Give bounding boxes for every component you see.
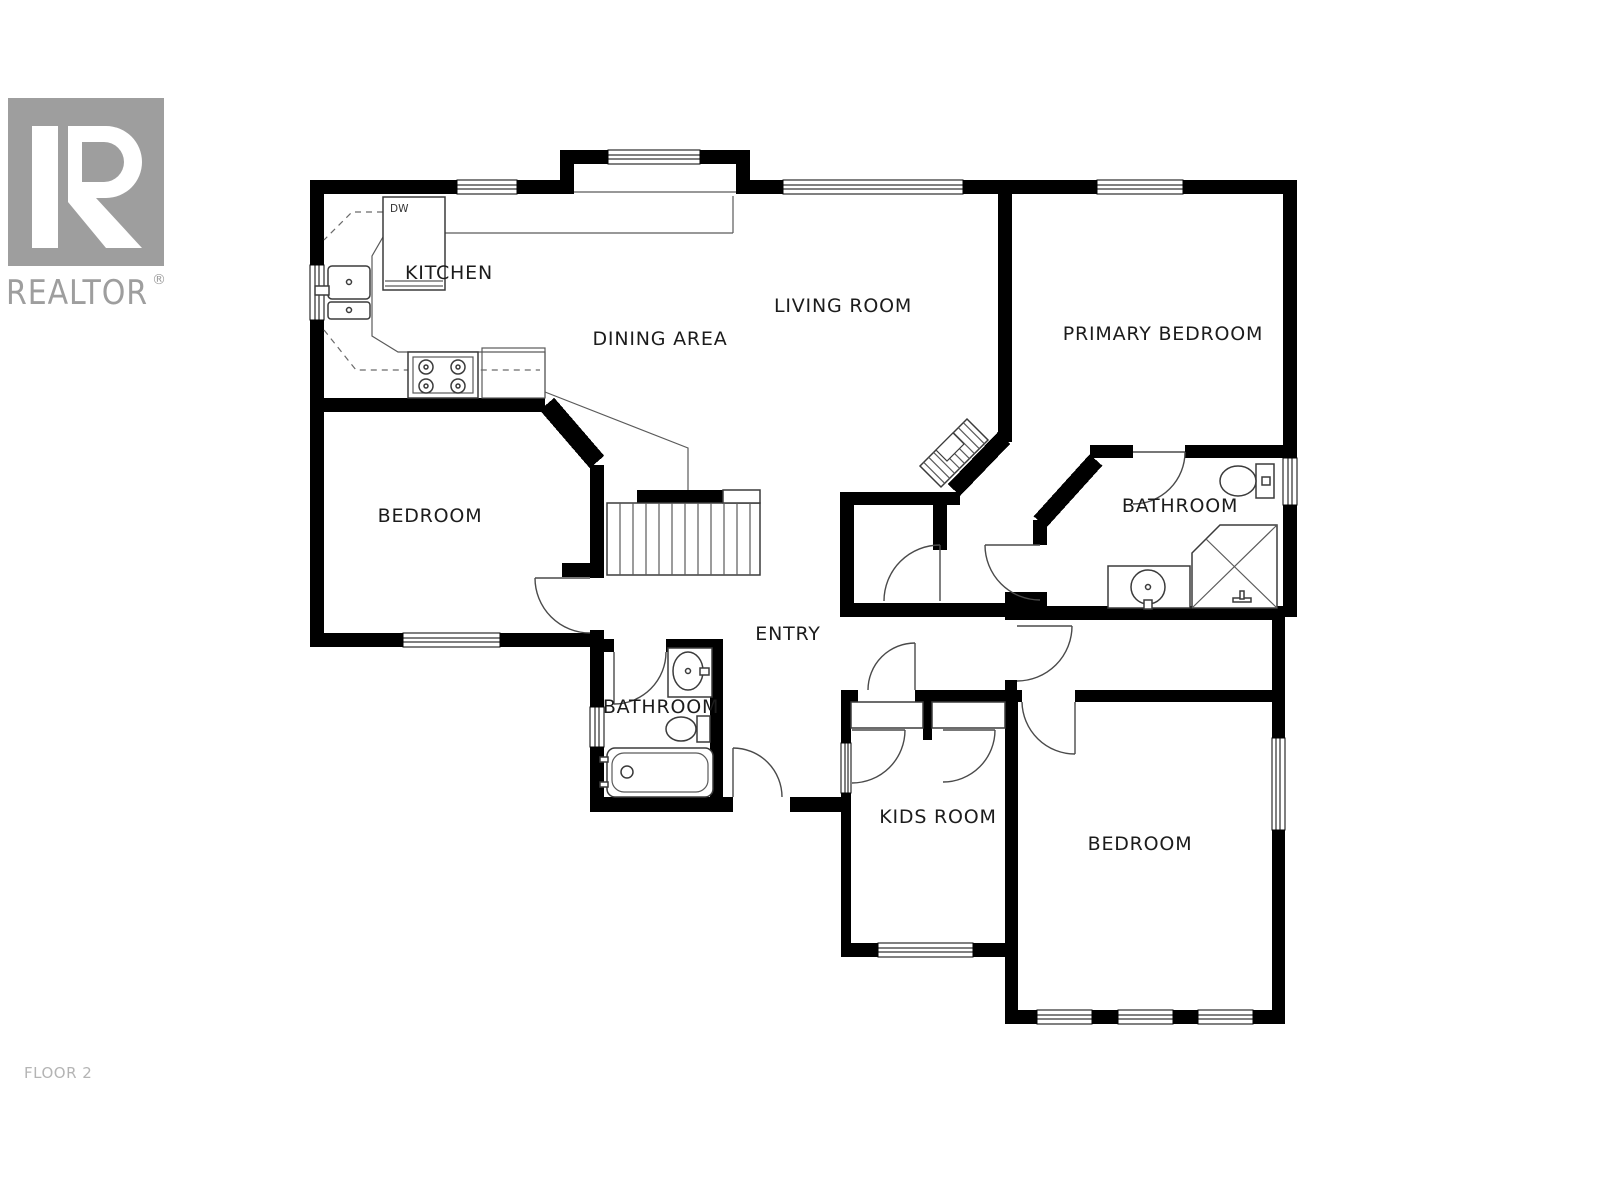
door-hallway <box>1017 626 1072 681</box>
stove-icon <box>408 352 478 398</box>
room-label-primary-bedroom: PRIMARY BEDROOM <box>1063 323 1263 345</box>
room-label-kids-room: KIDS ROOM <box>879 806 997 828</box>
staircase <box>607 490 760 575</box>
dishwasher-label: DW <box>390 203 409 215</box>
window <box>1118 1010 1173 1024</box>
realtor-logo: REALTOR ® <box>6 98 166 313</box>
room-label-bedroom-west: BEDROOM <box>378 505 483 527</box>
room-label-kitchen: KITCHEN <box>405 262 493 284</box>
registered-mark: ® <box>152 272 166 288</box>
window <box>783 180 963 194</box>
window <box>1097 180 1183 194</box>
shower-icon <box>1192 525 1277 608</box>
room-label-entry: ENTRY <box>755 623 820 645</box>
window <box>1198 1010 1253 1024</box>
realtor-logo-text: REALTOR <box>6 273 148 313</box>
toilet-ensuite-icon <box>1220 464 1274 498</box>
flo or-label: FLOOR 2 <box>24 1064 92 1082</box>
room-labels: KITCHEN DINING AREA LIVING ROOM PRIMARY … <box>378 262 1264 855</box>
window <box>841 743 851 793</box>
room-label-bathroom-ensuite: BATHROOM <box>1122 495 1238 517</box>
realtor-logo-mark <box>8 98 164 266</box>
room-label-living: LIVING ROOM <box>774 295 912 317</box>
floorplan-canvas: REALTOR ® <box>0 0 1600 1200</box>
door-front-entry <box>733 748 782 797</box>
window <box>403 633 500 647</box>
door-primary-suite <box>985 545 1040 600</box>
window <box>1283 458 1297 505</box>
bathtub-icon <box>600 748 713 797</box>
vanity-sink-main-icon <box>668 648 712 697</box>
toilet-main-icon <box>666 716 710 742</box>
door-kids-hall <box>868 643 915 690</box>
window <box>608 150 700 164</box>
window <box>878 943 973 957</box>
window <box>1037 1010 1092 1024</box>
door-west-bedroom <box>535 578 590 633</box>
door-kids-closet-left <box>852 730 905 783</box>
room-label-dining: DINING AREA <box>592 328 727 350</box>
window <box>1272 738 1285 830</box>
door-south-bedroom <box>1022 702 1075 754</box>
room-label-bedroom-south: BEDROOM <box>1088 833 1193 855</box>
door-entry-closet <box>884 545 940 601</box>
door-kids-closet-right <box>943 730 995 782</box>
room-label-bathroom-main: BATHROOM <box>603 696 719 718</box>
window <box>457 180 517 194</box>
vanity-sink-ensuite-icon <box>1108 566 1190 609</box>
